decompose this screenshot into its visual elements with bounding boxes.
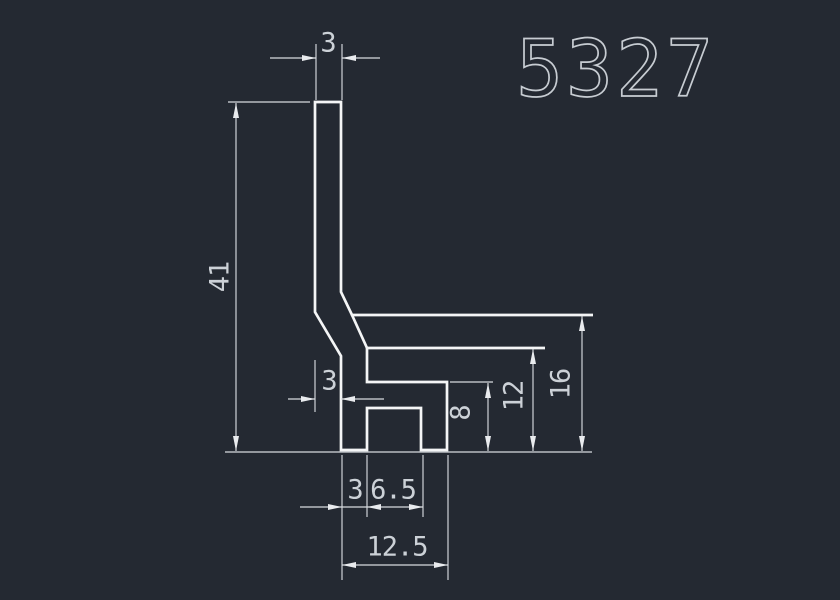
dim-mid-offset: 3 [321, 368, 336, 395]
dim-flange-top-height: 16 [548, 369, 575, 400]
profile-jog-inner-diagonal [352, 315, 367, 348]
cad-viewport: 5327 3 41 3 8 12 16 3 6.5 12.5 [0, 0, 840, 600]
drawing-number: 5327 [516, 31, 716, 109]
dim-flange-underside-height: 12 [501, 381, 528, 412]
dim-overall-height: 41 [207, 262, 234, 293]
dim-foot-width: 3 [347, 477, 362, 504]
dim-arm-height: 8 [448, 405, 475, 420]
dim-base-width: 12.5 [366, 534, 427, 561]
dim-top-wall-thickness: 3 [320, 30, 335, 57]
dim-slot-width: 6.5 [370, 477, 416, 504]
